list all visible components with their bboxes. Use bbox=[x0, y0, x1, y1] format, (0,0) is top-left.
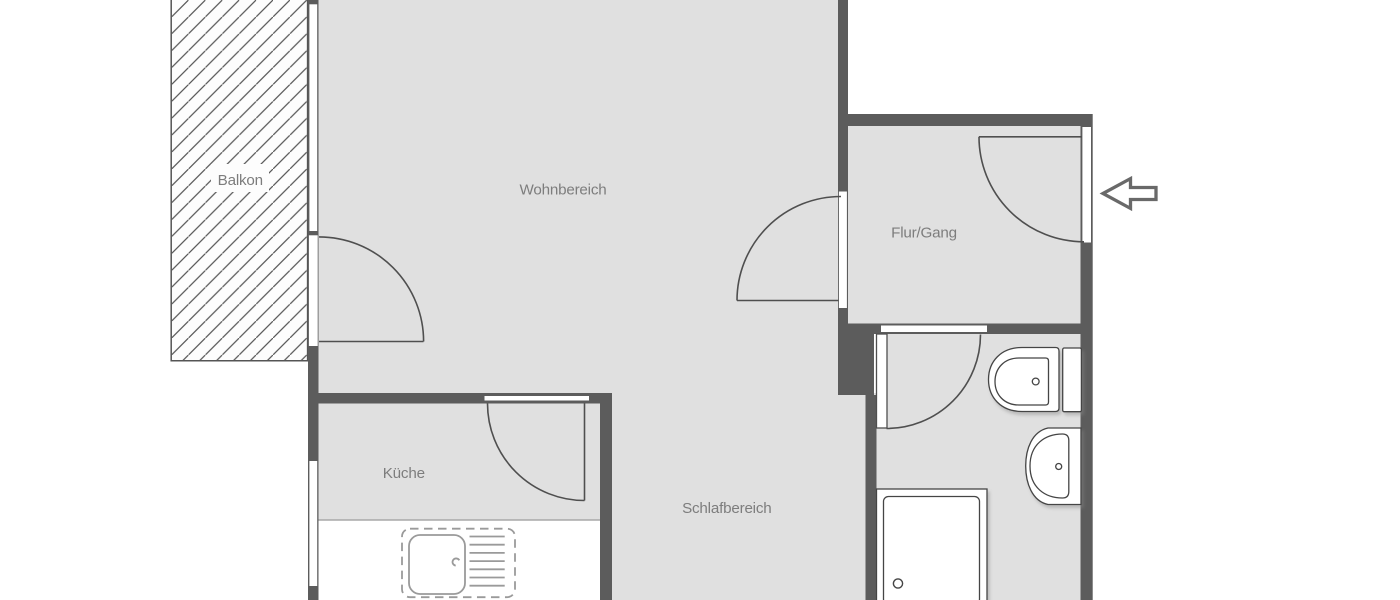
svg-text:Schlafbereich: Schlafbereich bbox=[682, 500, 771, 517]
svg-text:Küche: Küche bbox=[383, 465, 425, 482]
svg-text:Flur/Gang: Flur/Gang bbox=[891, 225, 957, 242]
svg-text:Balkon: Balkon bbox=[218, 172, 263, 189]
svg-text:Wohnbereich: Wohnbereich bbox=[519, 182, 606, 199]
